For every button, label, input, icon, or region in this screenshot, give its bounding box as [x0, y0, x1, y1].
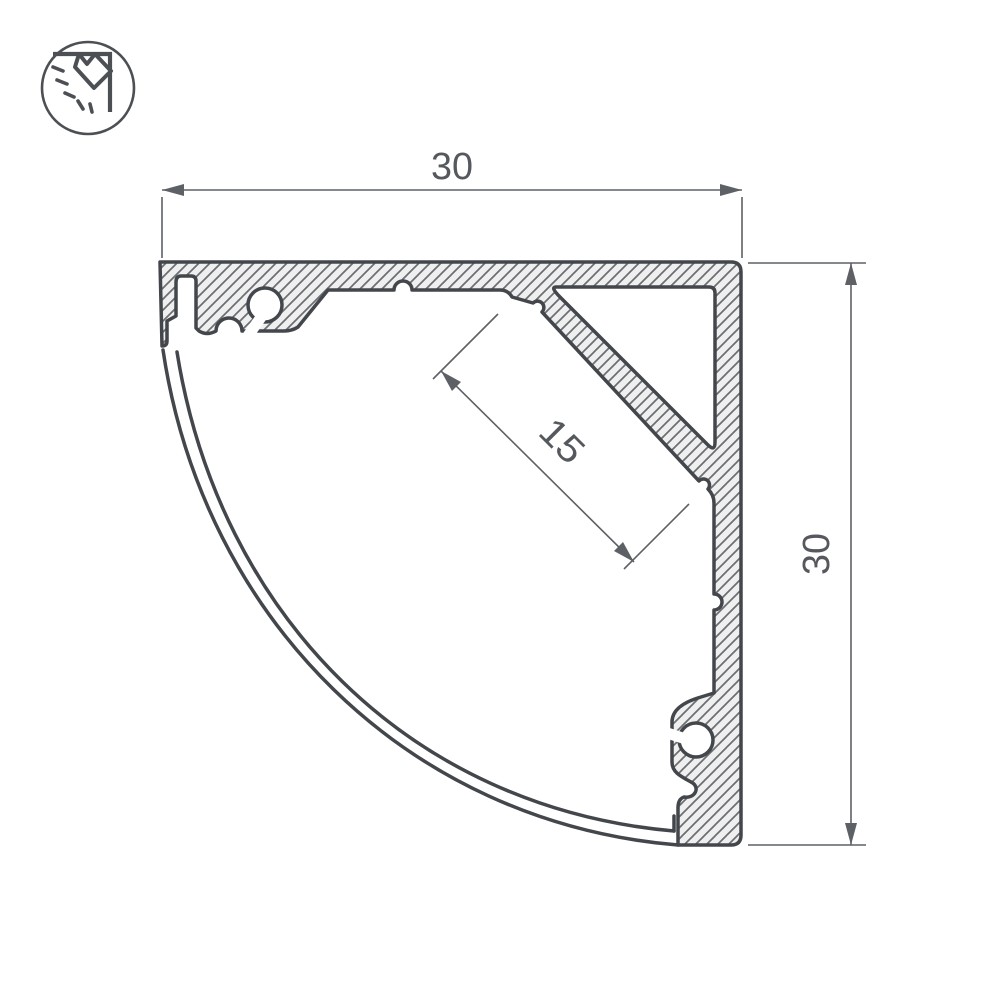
profile-drawing: 30 30 15 [0, 0, 1000, 1000]
arrowhead-up-icon [845, 263, 857, 285]
corner-light-icon [75, 54, 111, 88]
drawing-canvas: 30 30 15 [0, 0, 1000, 1000]
diffuser-arc [163, 350, 678, 845]
dim-width-value: 30 [431, 146, 473, 188]
dim-led-surface-value: 15 [530, 410, 592, 472]
dimension-led-surface: 15 [433, 314, 689, 569]
extension-line [433, 314, 498, 379]
dimension-width: 30 [162, 146, 742, 258]
arrowhead-right-icon [720, 184, 742, 196]
arrowhead-left-icon [162, 184, 184, 196]
dimension-height: 30 [748, 263, 866, 845]
dim-height-value: 30 [796, 533, 838, 575]
arrowhead-down-icon [845, 823, 857, 845]
dimension-line [441, 371, 634, 562]
logo [42, 42, 134, 134]
extension-line [624, 504, 689, 569]
diffuser-outer-line [163, 350, 678, 845]
